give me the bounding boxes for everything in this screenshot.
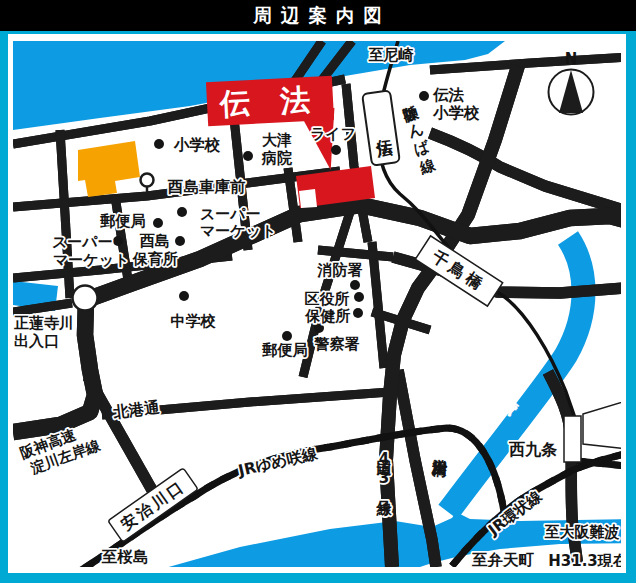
label-junior-high: 中学校 [171, 312, 217, 330]
health-center-dot [353, 308, 363, 318]
denpo-elem-dot [419, 91, 429, 101]
junior-high-dot [179, 291, 189, 301]
page-title: 周辺案内図 [252, 5, 391, 26]
ward-office-dot [354, 292, 364, 302]
label-fire-station: 消防署 [317, 261, 363, 279]
label-denpo-elem-l1: 伝法 [432, 86, 465, 104]
label-life: ライフ [310, 125, 356, 143]
interchange-circle [73, 286, 98, 311]
label-supermarket1-l2: マーケット [200, 222, 276, 240]
compass-north-label: N [565, 50, 578, 68]
label-torishima-depot: 酉島車庫前 [167, 178, 246, 196]
label-police: 警察署 [314, 335, 360, 353]
label-post-office2: 郵便局 [262, 341, 308, 359]
label-to-bentencho: 至弁天町 [471, 551, 535, 569]
fire-station-dot [350, 280, 360, 290]
post-office2-dot [282, 331, 292, 341]
elementary-dot [154, 139, 164, 149]
life-dot [331, 145, 341, 155]
label-to-osaka-namba: 至大阪難波 [545, 523, 620, 541]
label-health-center: 保健所 [305, 307, 351, 325]
label-shorenji-l2: 出入口 [14, 332, 59, 350]
post-office1-dot [153, 218, 163, 228]
label-otsu-hospital-l1: 大津 [262, 131, 292, 149]
supermarket1-dot [177, 207, 187, 217]
supermarket2-dot [113, 236, 123, 246]
label-torishima: 酉島 [139, 232, 170, 250]
label-to-sakurajima: 至桜島 [101, 548, 149, 566]
target-building-notch [299, 189, 317, 208]
label-supermarket2-l1: スーパー [52, 233, 113, 251]
label-to-amagasaki: 至尼崎 [369, 46, 414, 64]
label-post-office1: 郵便局 [100, 212, 146, 230]
label-nishikujo: 西九条 [508, 440, 558, 459]
label-elementary: 小学校 [173, 136, 221, 154]
label-otsu-hospital-l2: 病院 [261, 149, 293, 167]
label-supermarket1-l1: スーパー [200, 205, 261, 223]
label-denpo-elem-l2: 小学校 [432, 104, 480, 122]
otsu-hospital-dot [243, 151, 253, 161]
map-canvas: 周辺案内図 [0, 0, 636, 583]
label-supermarket2-l2: マーケット [53, 251, 129, 269]
label-nursery: 保育所 [132, 250, 178, 268]
area-guide-map: 周辺案内図 [0, 0, 636, 583]
callout-label: 伝 法 [218, 81, 321, 121]
torishima-dot [175, 236, 185, 246]
label-shorenji-l1: 正蓮寺川 [14, 314, 74, 332]
nishikujo-station-box [564, 416, 581, 462]
label-ward-office: 区役所 [305, 290, 350, 308]
